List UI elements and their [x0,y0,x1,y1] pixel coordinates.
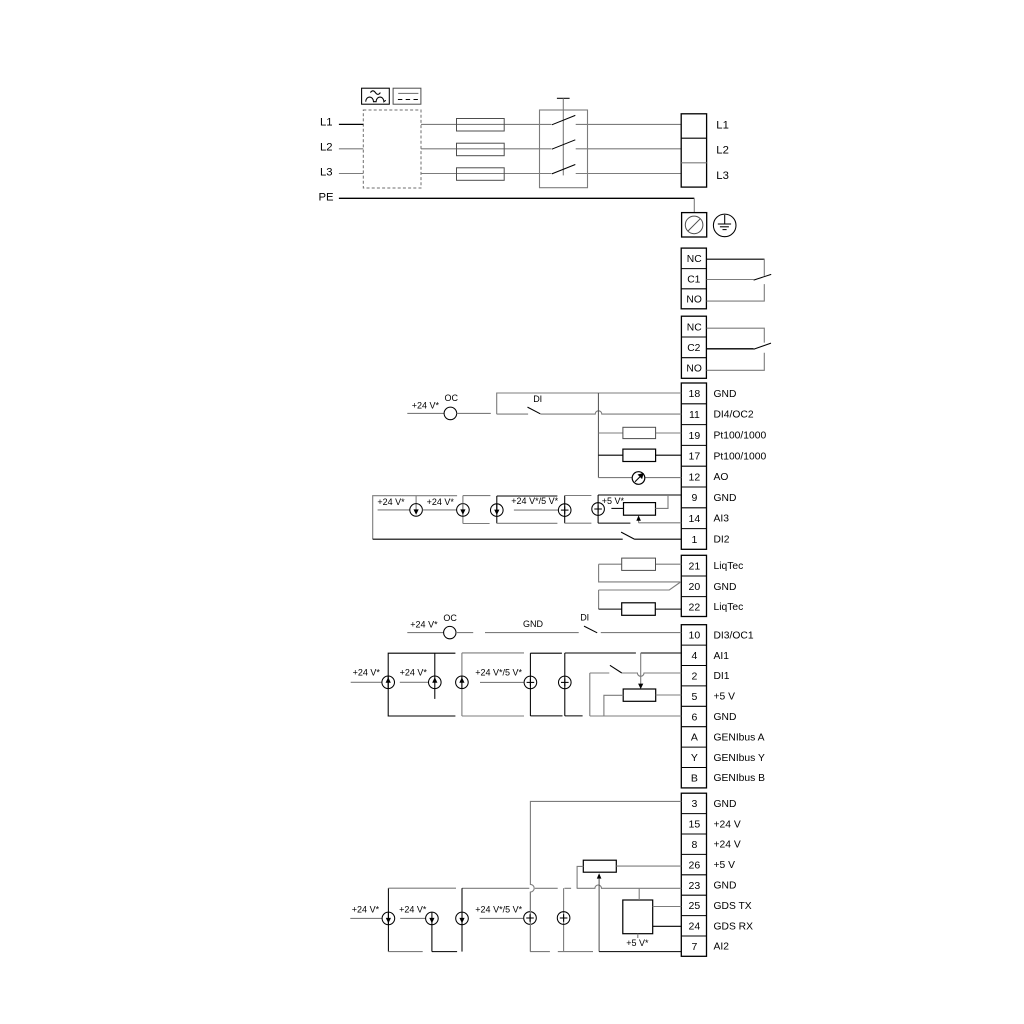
svg-text:NO: NO [686,363,701,374]
svg-text:17: 17 [689,451,701,463]
svg-text:26: 26 [689,859,701,871]
svg-text:24: 24 [689,921,701,933]
svg-text:GND: GND [714,389,737,400]
svg-text:GND: GND [714,881,737,892]
svg-text:+24 V*: +24 V* [399,905,427,915]
svg-text:Pt100/1000: Pt100/1000 [714,451,767,462]
svg-text:A: A [691,732,698,744]
svg-text:21: 21 [689,561,701,573]
svg-text:15: 15 [689,819,701,831]
svg-text:GND: GND [714,712,737,723]
svg-text:14: 14 [689,513,701,525]
svg-text:GND: GND [523,619,544,629]
svg-text:GDS TX: GDS TX [714,901,752,912]
svg-text:Y: Y [691,752,698,764]
svg-text:25: 25 [689,900,701,912]
svg-text:L1: L1 [716,120,729,132]
svg-text:+24 V: +24 V [714,819,741,830]
svg-text:GENIbus A: GENIbus A [714,732,765,743]
svg-text:GENIbus B: GENIbus B [714,773,766,784]
svg-text:1: 1 [691,534,697,546]
svg-text:+24 V*: +24 V* [352,905,380,915]
svg-text:9: 9 [691,492,697,504]
svg-text:12: 12 [689,471,701,483]
svg-text:3: 3 [691,798,697,810]
svg-text:AO: AO [714,472,729,483]
svg-text:+24 V*: +24 V* [353,668,381,678]
svg-text:GND: GND [714,799,737,810]
svg-text:NO: NO [686,294,701,305]
svg-text:+5 V*: +5 V* [602,496,625,506]
svg-text:11: 11 [689,409,700,421]
svg-text:AI2: AI2 [714,942,730,953]
svg-text:DI3/OC1: DI3/OC1 [714,630,754,641]
svg-text:8: 8 [691,839,697,851]
svg-text:LiqTec: LiqTec [714,561,744,572]
svg-text:GND: GND [714,582,737,593]
svg-text:DI1: DI1 [714,671,730,682]
svg-text:Pt100/1000: Pt100/1000 [714,431,767,442]
svg-text:+5 V*: +5 V* [626,938,649,948]
svg-text:+5 V: +5 V [714,860,736,871]
svg-text:+24 V: +24 V [714,840,741,851]
svg-text:18: 18 [689,388,701,400]
svg-text:GENIbus Y: GENIbus Y [714,753,765,764]
svg-text:C2: C2 [687,343,700,354]
svg-text:+5 V: +5 V [714,692,736,703]
svg-text:GND: GND [714,493,737,504]
svg-text:20: 20 [689,581,701,593]
svg-text:OC: OC [443,613,457,623]
svg-text:+24 V*/5 V*: +24 V*/5 V* [475,668,522,678]
svg-text:DI: DI [533,394,542,404]
svg-text:GDS RX: GDS RX [714,921,754,932]
svg-text:+24 V*: +24 V* [377,497,405,507]
svg-text:+24 V*/5 V*: +24 V*/5 V* [475,905,522,915]
svg-text:LiqTec: LiqTec [714,602,744,613]
svg-text:+24 V*: +24 V* [400,668,428,678]
svg-text:DI: DI [580,612,589,622]
svg-text:AI3: AI3 [714,514,730,525]
svg-text:L2: L2 [716,145,729,157]
svg-text:B: B [691,773,698,785]
svg-text:NC: NC [687,254,702,265]
svg-text:DI2: DI2 [714,535,730,546]
svg-text:AI1: AI1 [714,651,730,662]
svg-text:5: 5 [691,691,697,703]
svg-text:NC: NC [687,322,702,333]
svg-text:2: 2 [691,671,697,683]
svg-text:+24 V*/5 V*: +24 V*/5 V* [511,496,558,506]
svg-text:4: 4 [691,650,697,662]
svg-text:+24 V*: +24 V* [427,497,455,507]
svg-text:10: 10 [689,630,701,642]
svg-text:+24 V*: +24 V* [410,620,438,630]
svg-text:C1: C1 [687,274,700,285]
svg-text:L2: L2 [320,141,333,153]
svg-text:PE: PE [319,192,335,204]
svg-text:OC: OC [445,393,459,403]
svg-text:7: 7 [691,941,697,953]
svg-text:23: 23 [689,880,701,892]
svg-text:+24 V*: +24 V* [412,400,440,410]
svg-text:6: 6 [691,711,697,723]
svg-text:L3: L3 [320,166,333,178]
svg-text:22: 22 [689,601,701,613]
svg-text:L1: L1 [320,116,333,128]
svg-text:DI4/OC2: DI4/OC2 [714,410,754,421]
svg-text:L3: L3 [716,170,729,182]
svg-text:19: 19 [689,430,701,442]
